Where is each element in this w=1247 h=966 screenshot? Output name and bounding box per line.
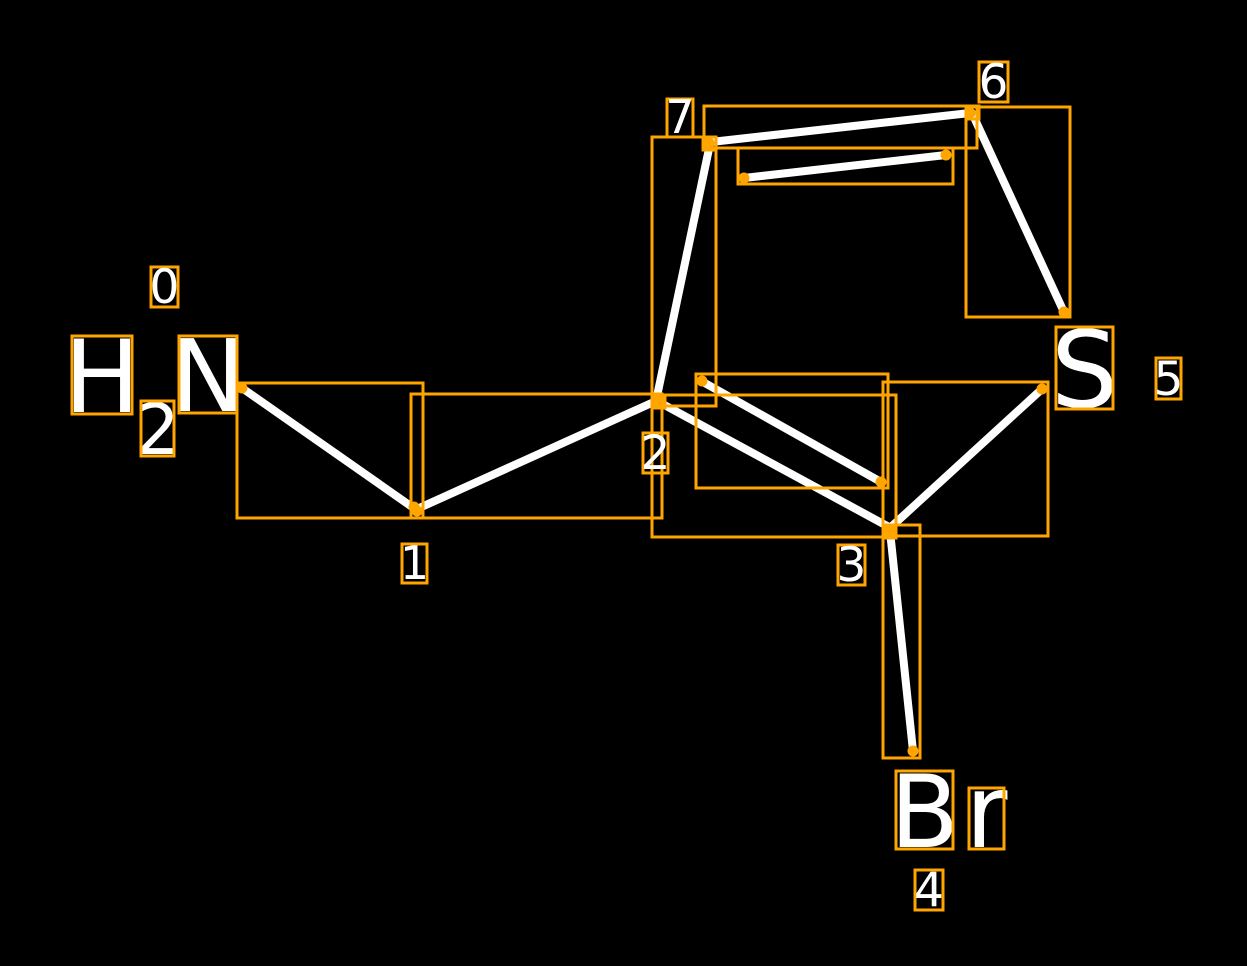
bond-1-2 bbox=[417, 401, 656, 509]
dot-inner23-left bbox=[697, 376, 708, 387]
dot-atom1-b bbox=[412, 506, 423, 517]
bond-2-3-inner bbox=[703, 382, 881, 482]
bond-5-3 bbox=[891, 389, 1042, 527]
index-label-1: 1 bbox=[400, 536, 429, 590]
dot-atom6 bbox=[965, 108, 976, 119]
dot-bond0-n-end bbox=[237, 383, 248, 394]
index-label-4: 4 bbox=[914, 863, 944, 918]
dot-bond65-s-end bbox=[1059, 307, 1070, 318]
dot-inner76-right bbox=[941, 150, 952, 161]
atom-symbol-r: r bbox=[966, 753, 1008, 872]
dot-bond34-br-end bbox=[908, 746, 919, 757]
index-label-2: 2 bbox=[641, 426, 671, 481]
dot-atom2 bbox=[652, 396, 663, 407]
bond-3-4 bbox=[890, 531, 913, 751]
molecule-svg: H2NSBr 01234567 bbox=[0, 0, 1247, 966]
bond-0-1 bbox=[242, 388, 415, 509]
index-label-3: 3 bbox=[837, 538, 867, 593]
dot-inner23-right bbox=[876, 477, 887, 488]
index-label-7: 7 bbox=[665, 90, 694, 144]
dot-atom7 bbox=[704, 138, 715, 149]
atom-index-labels: 01234567 bbox=[150, 55, 1184, 918]
bond-2-7 bbox=[656, 144, 710, 401]
bond-6-5 bbox=[972, 113, 1063, 310]
index-label-5: 5 bbox=[1154, 352, 1184, 407]
index-label-6: 6 bbox=[979, 55, 1009, 110]
bond-7-6-inner bbox=[744, 155, 946, 178]
dot-atom3 bbox=[885, 525, 896, 536]
bond-7-6 bbox=[711, 113, 970, 142]
molecule-annotation-view: H2NSBr 01234567 bbox=[0, 0, 1247, 966]
dot-bond53-s-end bbox=[1037, 384, 1048, 395]
dot-inner76-left bbox=[739, 173, 750, 184]
index-label-0: 0 bbox=[150, 260, 180, 315]
